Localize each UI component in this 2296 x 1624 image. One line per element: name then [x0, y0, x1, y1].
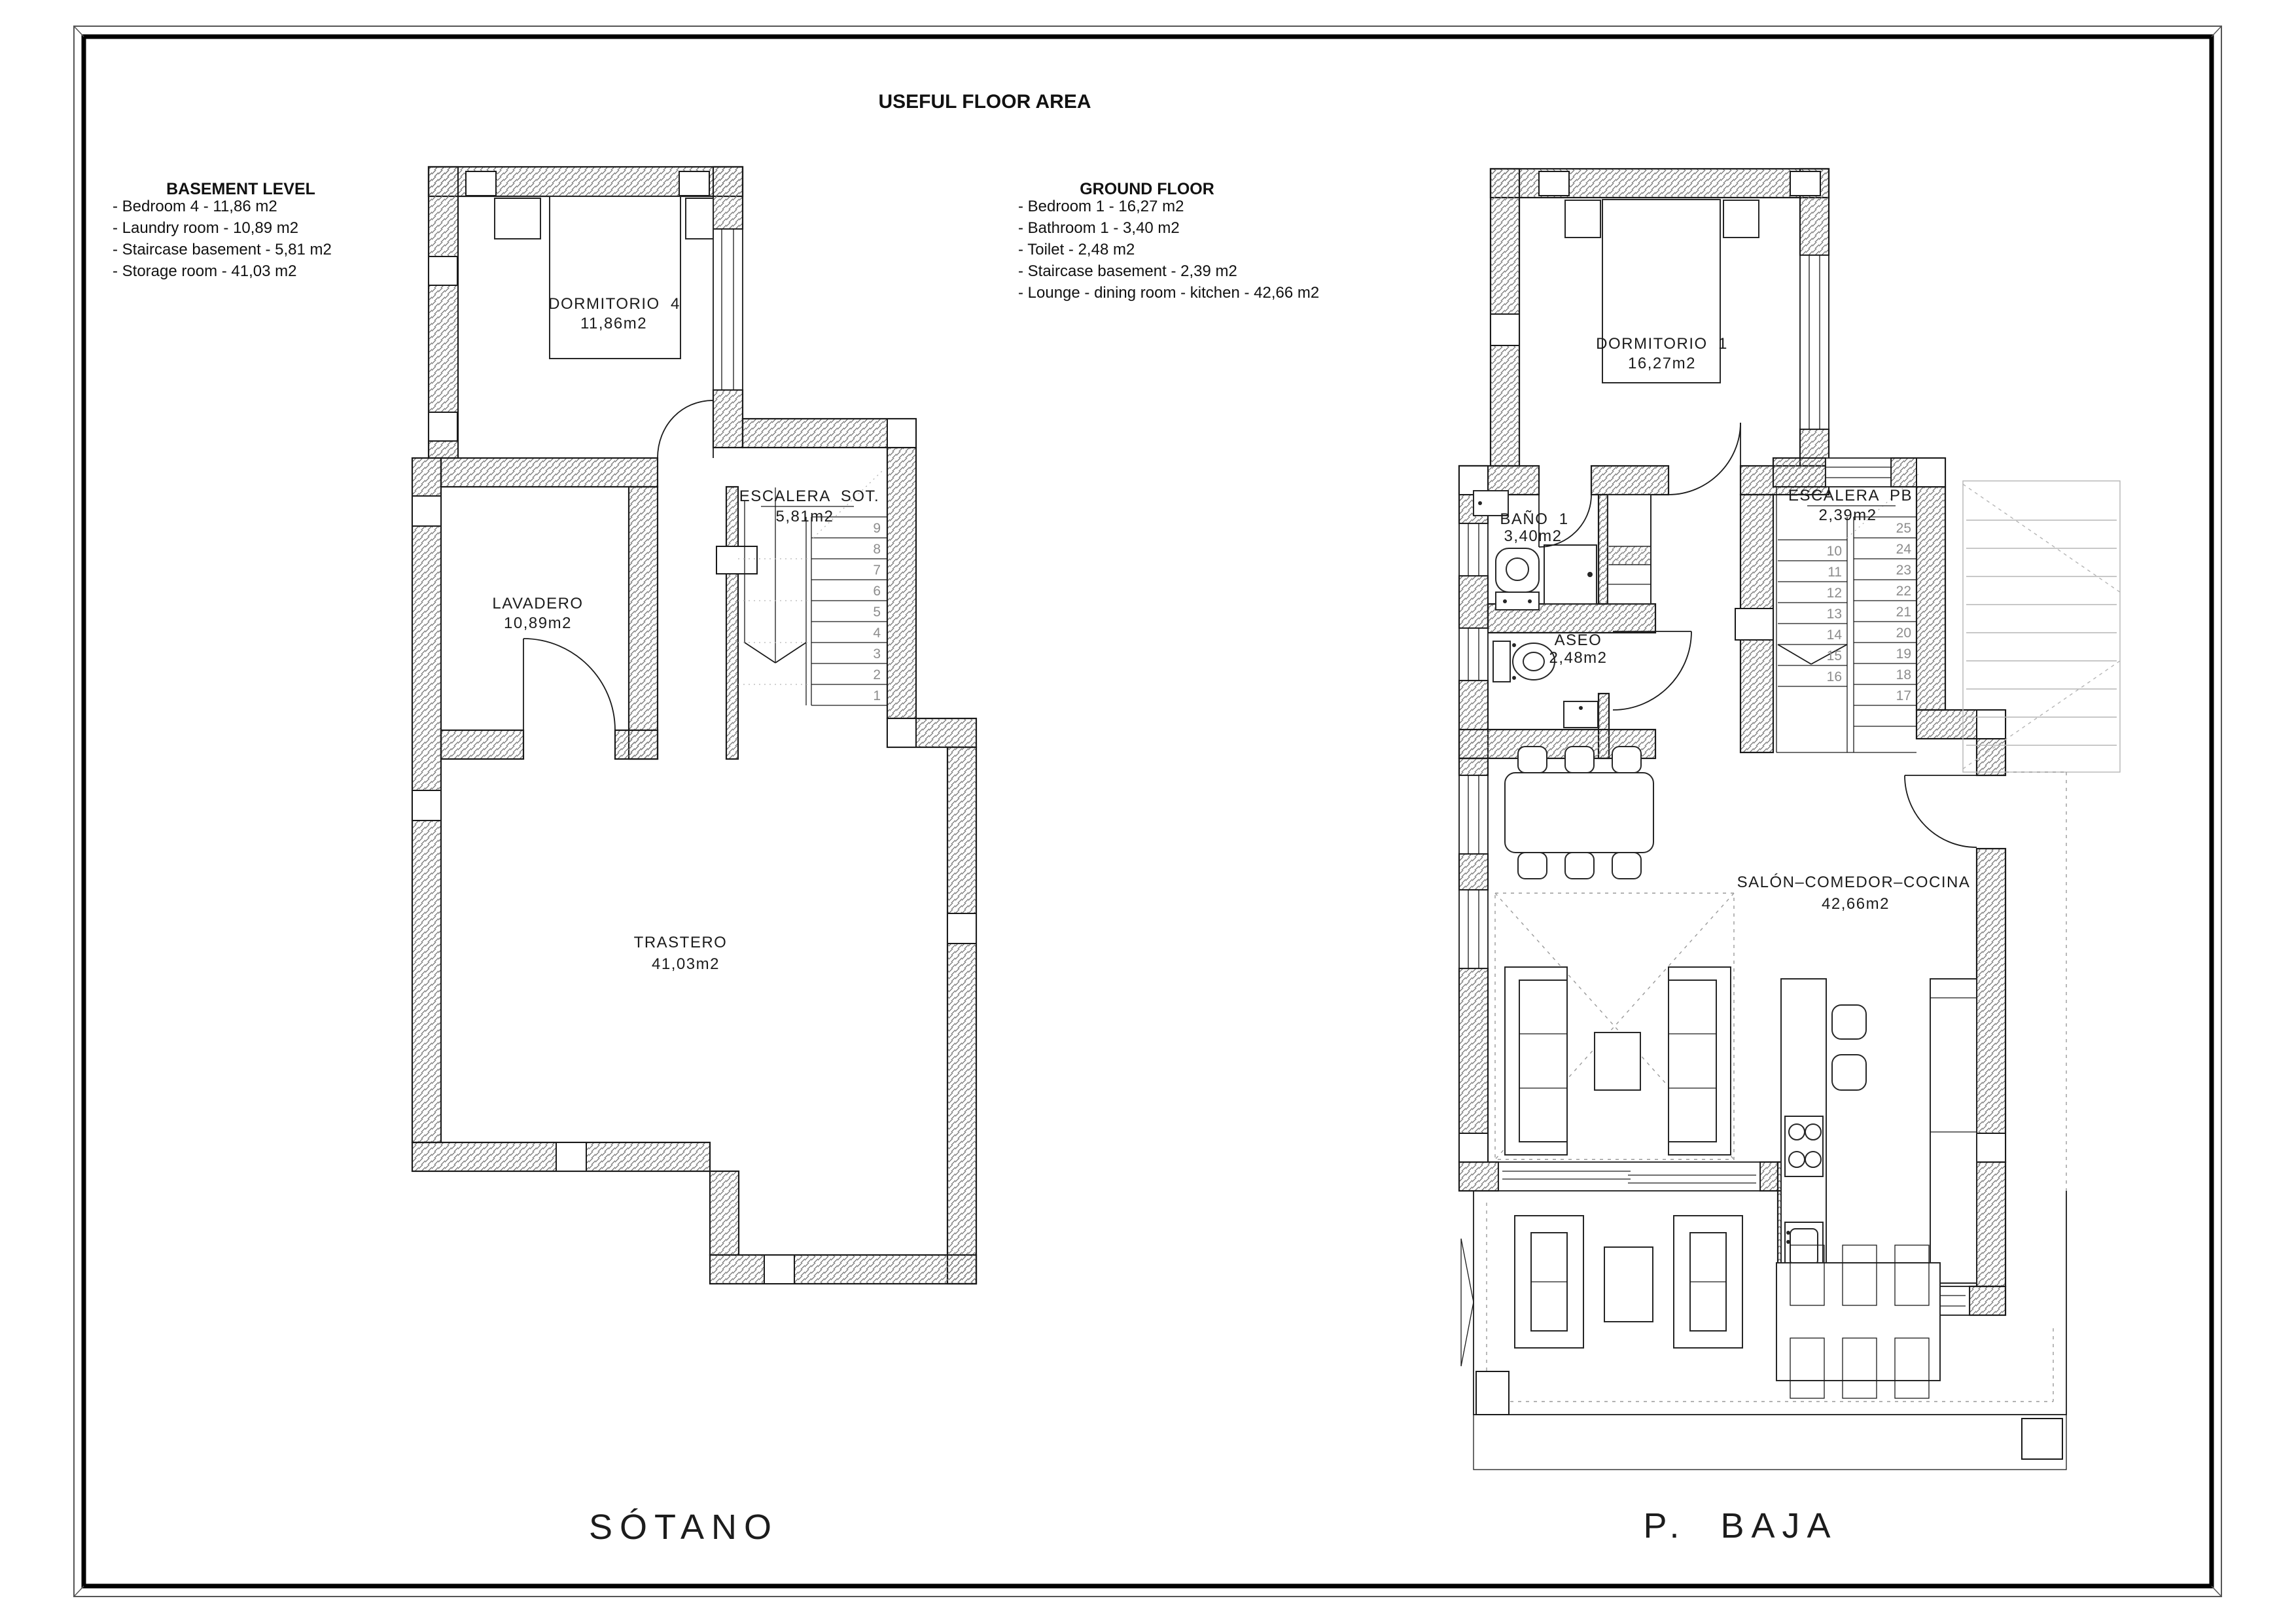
kitchen-island-icon — [1781, 979, 1826, 1283]
door-arc — [1669, 423, 1740, 495]
sofa-icon — [1505, 967, 1567, 1155]
legend-item: - Bedroom 4 - 11,86 m2 — [113, 198, 277, 215]
stair-step-number: 4 — [873, 626, 881, 641]
armchair-icon — [1515, 1216, 1583, 1348]
ground-floor-plan: DORMITORIO 1 16,27m2 BAÑO 1 3,40m2 — [1459, 169, 2120, 1545]
room-label: ESCALERA SOT. — [739, 487, 879, 505]
stair-step-number: 2 — [873, 667, 881, 682]
room-label: ASEO — [1555, 631, 1602, 649]
stair-step-number: 12 — [1827, 586, 1842, 601]
room-label: ESCALERA PB — [1788, 487, 1913, 504]
stair-step-number: 16 — [1827, 669, 1842, 684]
stair-step-number: 17 — [1896, 688, 1911, 703]
armchair-icon — [1674, 1216, 1742, 1348]
stair-step-number: 14 — [1827, 627, 1843, 643]
stair-step-number: 11 — [1828, 565, 1842, 580]
outdoor-table-icon — [1776, 1245, 1940, 1398]
room-area: 16,27m2 — [1628, 355, 1696, 372]
kitchen-counter-icon — [1930, 979, 1977, 1283]
sofa-icon — [1669, 967, 1731, 1155]
stair-step-number: 24 — [1896, 542, 1912, 557]
room-area: 5,81m2 — [775, 508, 834, 525]
stair-step-number: 3 — [873, 646, 881, 662]
legend-basement-title: BASEMENT LEVEL — [166, 180, 315, 198]
legend-item: - Staircase basement - 2,39 m2 — [1018, 262, 1237, 280]
floor-plan-sheet: USEFUL FLOOR AREA BASEMENT LEVEL - Bedro… — [0, 0, 2296, 1624]
legend-item: - Laundry room - 10,89 m2 — [113, 219, 298, 237]
legend-item: - Toilet - 2,48 m2 — [1018, 241, 1135, 258]
stair-step-number: 15 — [1827, 648, 1842, 663]
legend-item: - Bedroom 1 - 16,27 m2 — [1018, 198, 1184, 215]
stair-step-number: 22 — [1896, 584, 1911, 599]
room-area: 3,40m2 — [1504, 527, 1562, 545]
shower-icon — [1544, 545, 1597, 604]
legend-item: - Bathroom 1 - 3,40 m2 — [1018, 219, 1180, 237]
stair-step-number: 20 — [1896, 626, 1911, 641]
room-label: SALÓN–COMEDOR–COCINA — [1737, 874, 1971, 891]
room-area: 41,03m2 — [652, 955, 720, 973]
dining-table-icon — [1505, 747, 1653, 879]
stair-step-number: 5 — [873, 605, 881, 620]
stair-step-number: 10 — [1827, 544, 1842, 559]
room-label: TRASTERO — [634, 934, 728, 951]
stair-step-number: 8 — [873, 542, 881, 557]
legend-basement: BASEMENT LEVEL - Bedroom 4 - 11,86 m2 - … — [113, 180, 332, 280]
stair-step-number: 23 — [1896, 563, 1911, 578]
sheet-title: USEFUL FLOOR AREA — [878, 91, 1091, 113]
stair-step-number: 6 — [873, 584, 881, 599]
toilet-icon — [1493, 641, 1555, 682]
stair-step-number: 19 — [1896, 646, 1911, 662]
room-area: 11,86m2 — [580, 315, 647, 332]
basement-plan: DORMITORIO 4 11,86m2 LAVADERO 10,89m2 — [412, 167, 976, 1547]
room-label: DORMITORIO 4 — [548, 295, 680, 313]
door-arc — [658, 400, 713, 458]
room-area: 2,39m2 — [1818, 506, 1877, 524]
room-area: 42,66m2 — [1822, 895, 1890, 913]
room-label: LAVADERO — [492, 595, 583, 612]
stair-step-number: 1 — [873, 688, 881, 703]
stair-step-number: 21 — [1896, 605, 1911, 620]
toilet-icon — [1496, 548, 1539, 610]
floor-label-pbaja: P. BAJA — [1643, 1506, 1837, 1545]
room-area: 2,48m2 — [1549, 649, 1607, 667]
stool-icon — [1832, 1005, 1866, 1039]
side-table-icon — [1604, 1247, 1653, 1322]
window — [713, 229, 743, 390]
stair-step-number: 18 — [1896, 667, 1911, 682]
sink-icon — [1564, 701, 1598, 728]
door-arc — [523, 639, 615, 730]
stair-step-number: 7 — [873, 563, 881, 578]
legend-ground-title: GROUND FLOOR — [1080, 180, 1214, 198]
legend-item: - Staircase basement - 5,81 m2 — [113, 241, 332, 258]
coffee-table-icon — [1595, 1033, 1640, 1090]
door-arc — [1905, 775, 1977, 847]
door-arc — [1613, 631, 1691, 710]
legend-ground: GROUND FLOOR - Bedroom 1 - 16,27 m2 - Ba… — [1018, 180, 1319, 302]
floor-label-sotano: SÓTANO — [589, 1508, 779, 1547]
stair-step-number: 25 — [1896, 521, 1911, 536]
room-label: DORMITORIO 1 — [1596, 335, 1728, 353]
stair-step-number: 9 — [873, 521, 881, 536]
closet-icon — [1608, 495, 1651, 604]
room-label: BAÑO 1 — [1500, 510, 1568, 528]
legend-item: - Lounge - dining room - kitchen - 42,66… — [1018, 284, 1319, 302]
stool-icon — [1832, 1055, 1866, 1090]
stair-step-number: 13 — [1827, 607, 1842, 622]
legend-item: - Storage room - 41,03 m2 — [113, 262, 296, 280]
bed-icon — [495, 196, 713, 359]
room-area: 10,89m2 — [504, 614, 572, 632]
floor-plan-drawing: USEFUL FLOOR AREA BASEMENT LEVEL - Bedro… — [0, 0, 2296, 1624]
